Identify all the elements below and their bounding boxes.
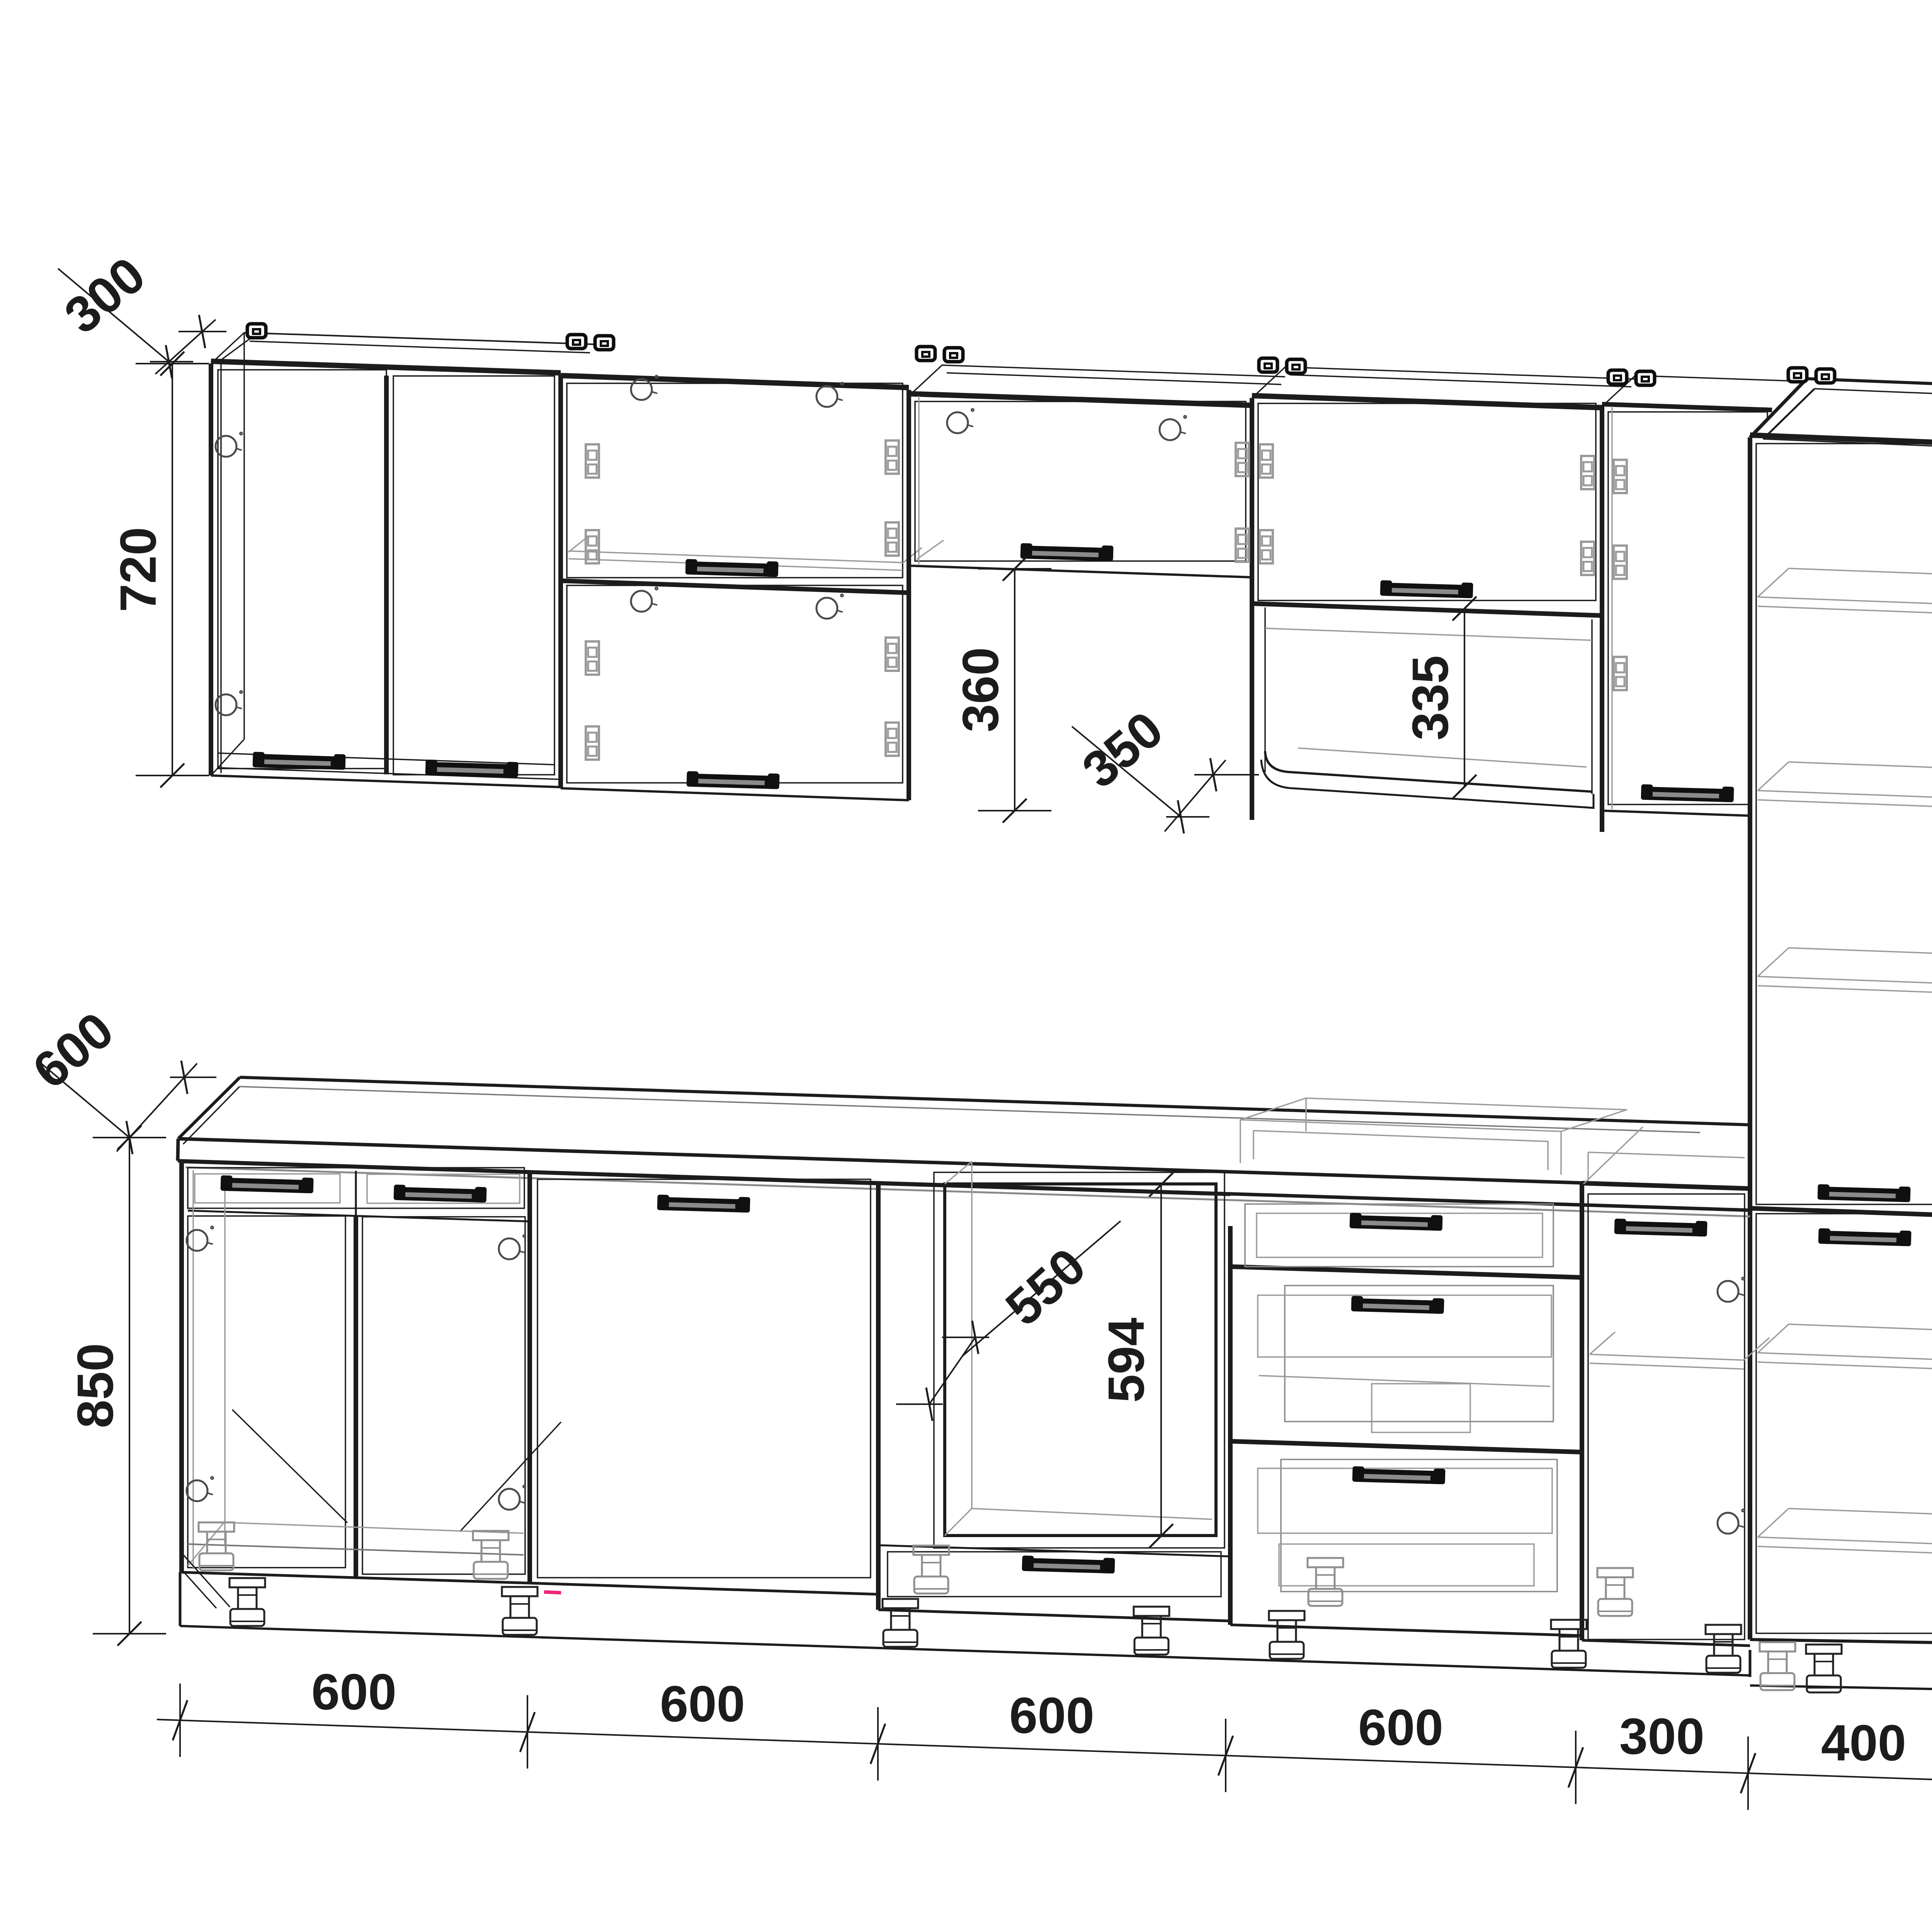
svg-text:300: 300 (1619, 1708, 1704, 1765)
svg-text:850: 850 (67, 1343, 124, 1428)
svg-text:600: 600 (1358, 1699, 1443, 1756)
svg-text:600: 600 (660, 1675, 745, 1732)
svg-text:594: 594 (1098, 1318, 1155, 1403)
svg-text:600: 600 (1009, 1687, 1094, 1744)
svg-text:335: 335 (1402, 655, 1459, 740)
svg-text:360: 360 (952, 647, 1009, 732)
svg-text:400: 400 (1821, 1714, 1906, 1771)
svg-text:720: 720 (110, 527, 167, 612)
svg-text:600: 600 (311, 1663, 396, 1720)
